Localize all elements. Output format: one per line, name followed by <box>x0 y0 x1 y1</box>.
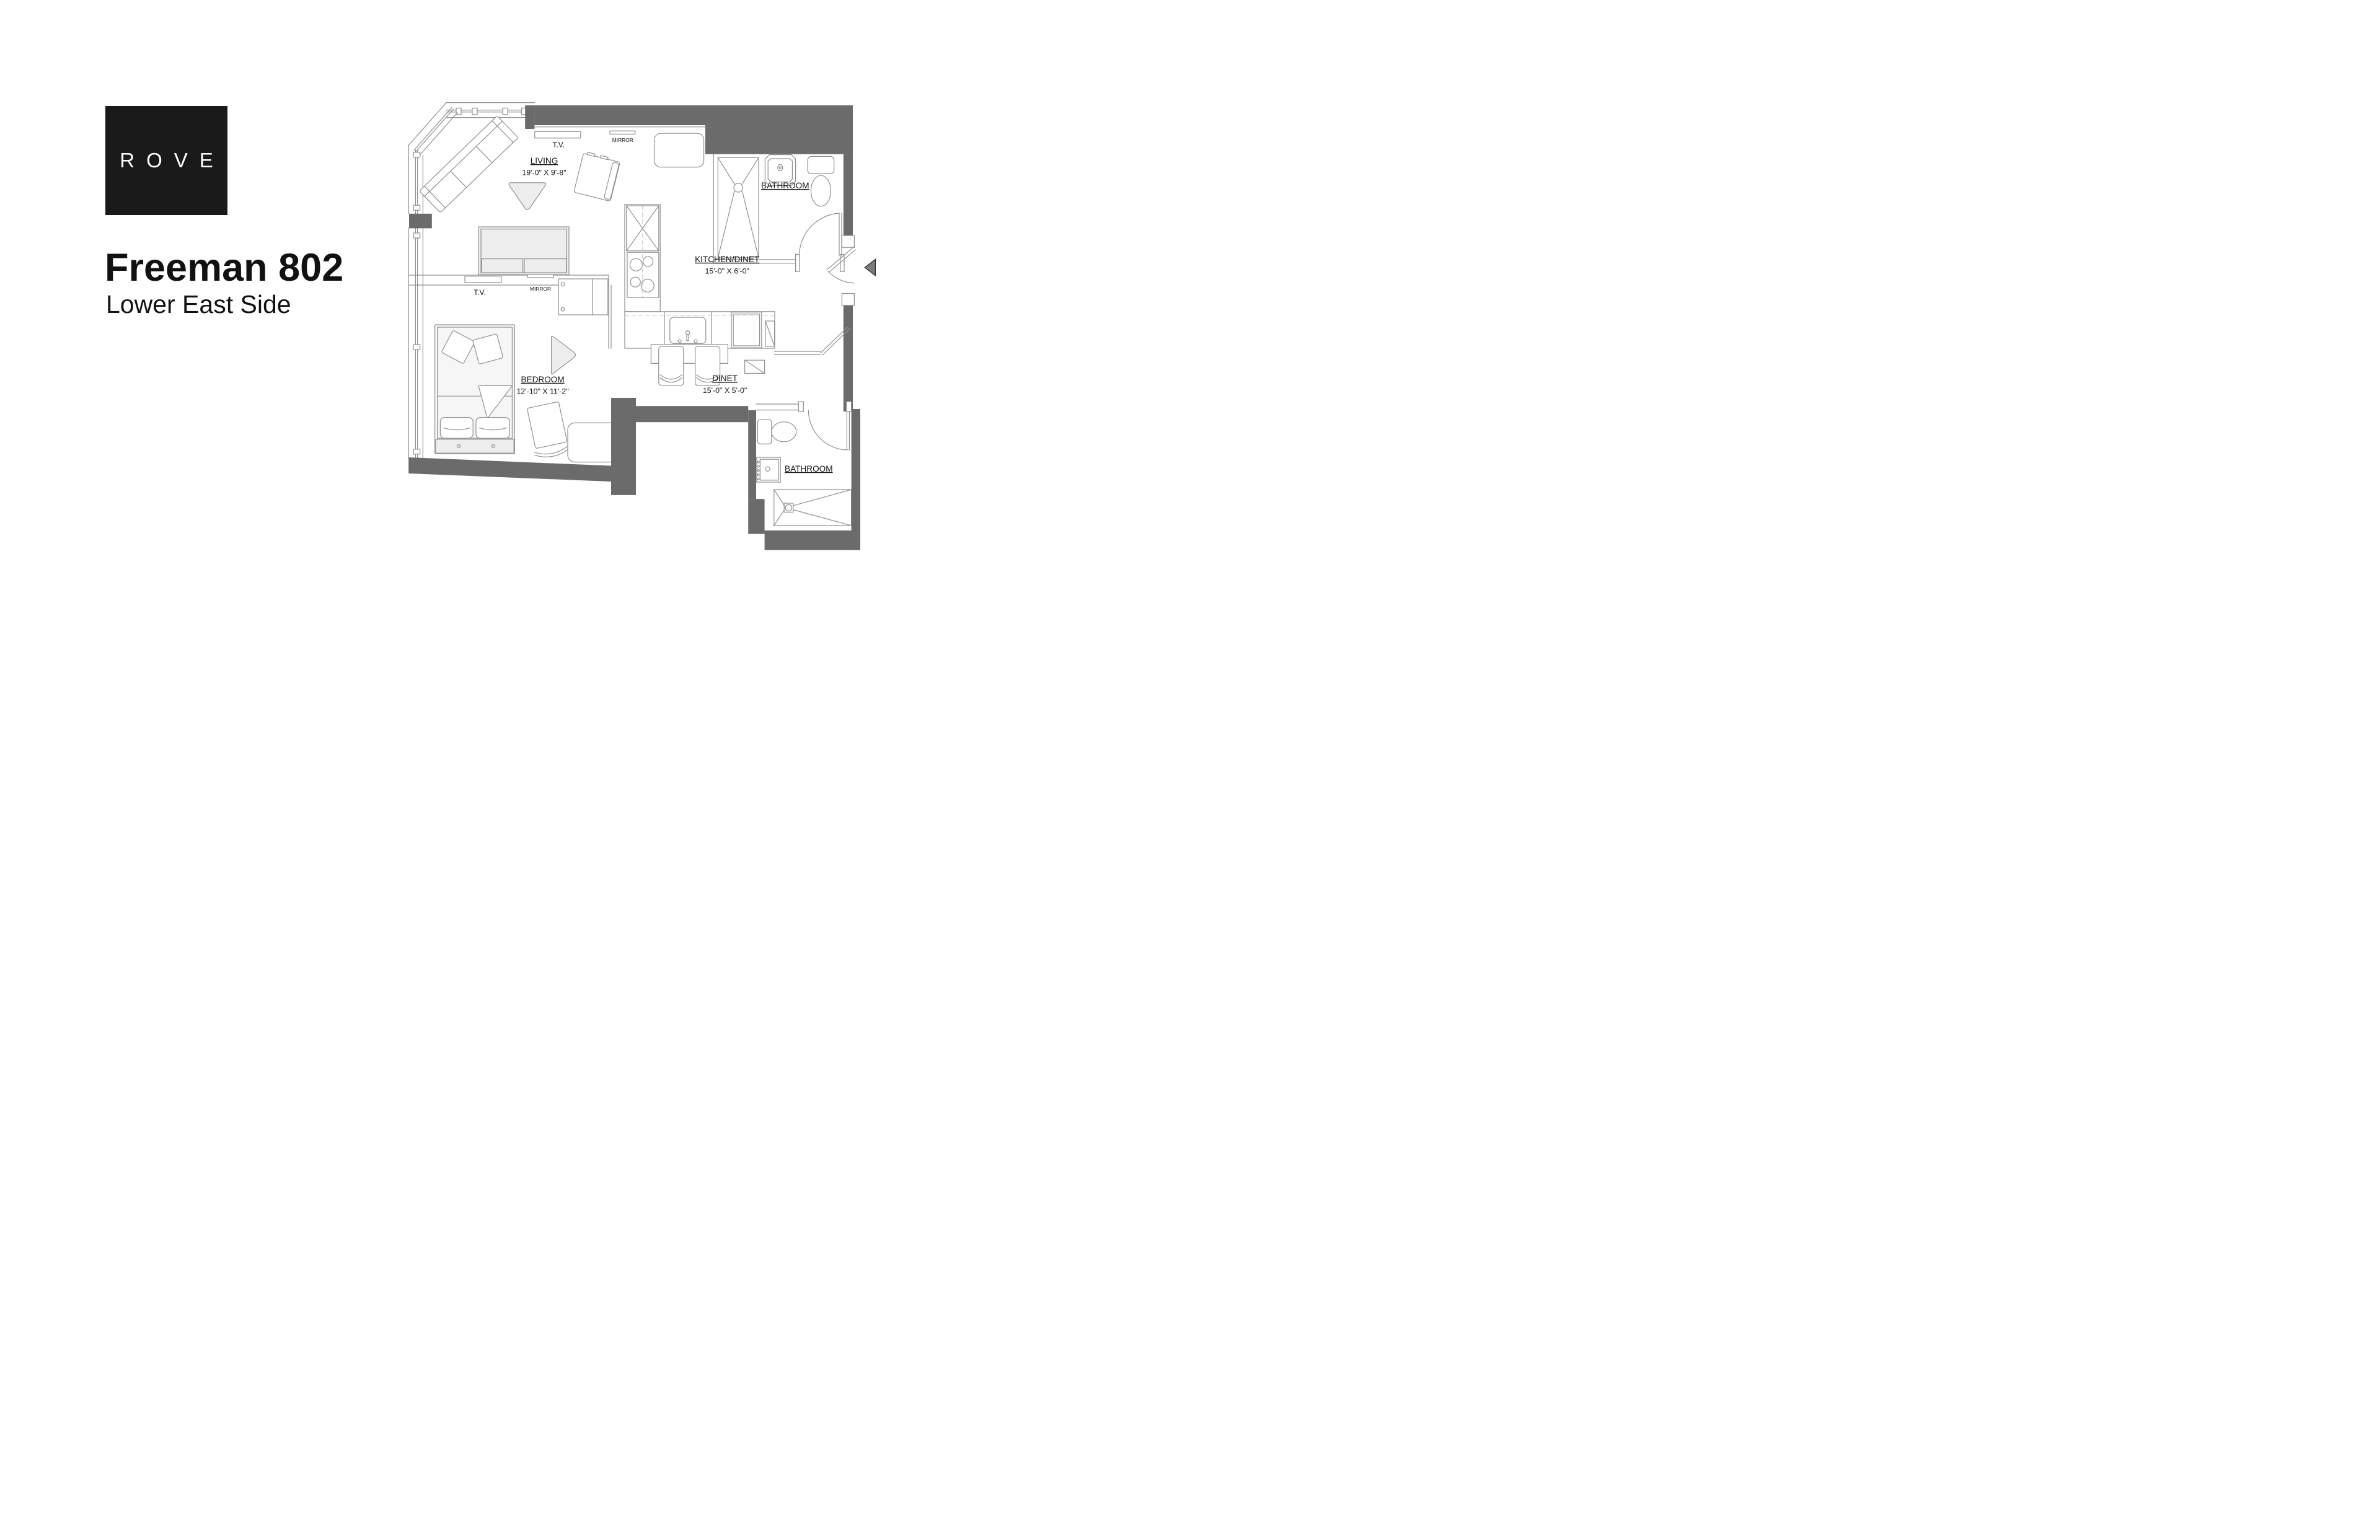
label-tv-bedroom: T.V. <box>474 288 486 297</box>
door-jamb <box>842 294 854 306</box>
label-living: LIVING <box>531 156 558 165</box>
media-console <box>478 227 569 275</box>
label-bathroom-top: BATHROOM <box>761 181 809 190</box>
entry-cabinet <box>745 360 765 373</box>
armchair <box>574 151 620 201</box>
side-table <box>551 336 575 374</box>
label-mirror-bedroom: MIRROR <box>530 286 551 292</box>
shower-top <box>718 157 759 258</box>
dims-living: 19'-0" X 9'-8" <box>522 168 566 177</box>
label-tv-living: T.V. <box>552 141 565 149</box>
window-mullion <box>413 345 420 350</box>
ottoman <box>654 133 704 167</box>
counter-end-panel <box>765 321 775 346</box>
listing-title: Freeman 802 <box>105 245 343 290</box>
wall-top-living <box>534 105 714 125</box>
label-mirror-living: MIRROR <box>612 137 633 143</box>
wall-top-bathroom-block <box>705 105 853 154</box>
mirror-bedroom <box>527 275 553 278</box>
wall-bedroom-south <box>408 457 636 495</box>
wall-left-pier <box>409 214 432 229</box>
floorplan-sheet: ROVE Freeman 802 Lower East Side <box>0 0 952 616</box>
dishwasher <box>731 312 762 348</box>
door-jamb <box>796 254 800 271</box>
pillow <box>476 418 509 439</box>
vanity-bottom <box>757 457 780 482</box>
door-jamb <box>847 402 852 411</box>
label-kitchen-dinet: KITCHEN/DINET <box>695 255 759 264</box>
label-bathroom-bottom: BATHROOM <box>785 464 833 473</box>
dresser <box>558 279 608 315</box>
wall-right-mid <box>844 304 853 411</box>
window-mullion <box>413 152 420 157</box>
pillow <box>440 418 473 439</box>
floorplan-drawing: LIVING 19'-0" X 9'-8" KITCHEN/DINET 15'-… <box>402 98 880 557</box>
rove-logo-text: ROVE <box>108 149 225 172</box>
door-jamb <box>798 402 803 411</box>
bathroom-top-fixtures <box>718 155 834 258</box>
bar-stool <box>659 346 684 385</box>
living-furniture <box>420 116 704 275</box>
kitchen-sink <box>670 317 706 343</box>
coffee-table <box>509 183 546 209</box>
wall-bathroom-left <box>748 410 756 499</box>
rove-logo: ROVE <box>105 106 227 215</box>
label-dinet: DINET <box>712 374 738 383</box>
window-mullion <box>503 108 508 114</box>
shower-bottom <box>774 490 852 526</box>
wall-bottom-bathroom <box>765 530 860 550</box>
headboard <box>436 439 514 453</box>
dims-bedroom: 12'-10" X 11'-2" <box>516 387 568 396</box>
dims-kitchen-dinet: 15'-0" X 6'-0" <box>705 267 749 276</box>
wall-top-west-cap <box>525 105 534 129</box>
toilet-top <box>808 156 834 206</box>
bedroom-chair <box>525 402 571 460</box>
wall-right-upper <box>844 154 853 237</box>
bedroom-furniture <box>435 275 619 462</box>
tv-bedroom <box>465 276 501 283</box>
window-mullion <box>413 449 420 454</box>
window-mullion <box>472 108 477 114</box>
cooktop <box>627 252 659 297</box>
window-mullion <box>413 233 420 238</box>
wall-dinet-south <box>636 406 748 422</box>
toilet-bottom <box>757 420 796 444</box>
mirror-living <box>610 131 635 134</box>
wall-right-lower <box>852 409 860 550</box>
wall-bathroom-step <box>748 499 764 534</box>
door-jamb <box>842 235 854 247</box>
dims-dinet: 15'-0" X 5'-0" <box>703 386 747 395</box>
label-bedroom: BEDROOM <box>521 375 564 384</box>
entry-arrow-icon <box>865 259 875 275</box>
window-mullion <box>413 205 420 210</box>
tv-living <box>535 131 581 138</box>
bed <box>435 325 515 454</box>
listing-subtitle: Lower East Side <box>106 290 291 319</box>
